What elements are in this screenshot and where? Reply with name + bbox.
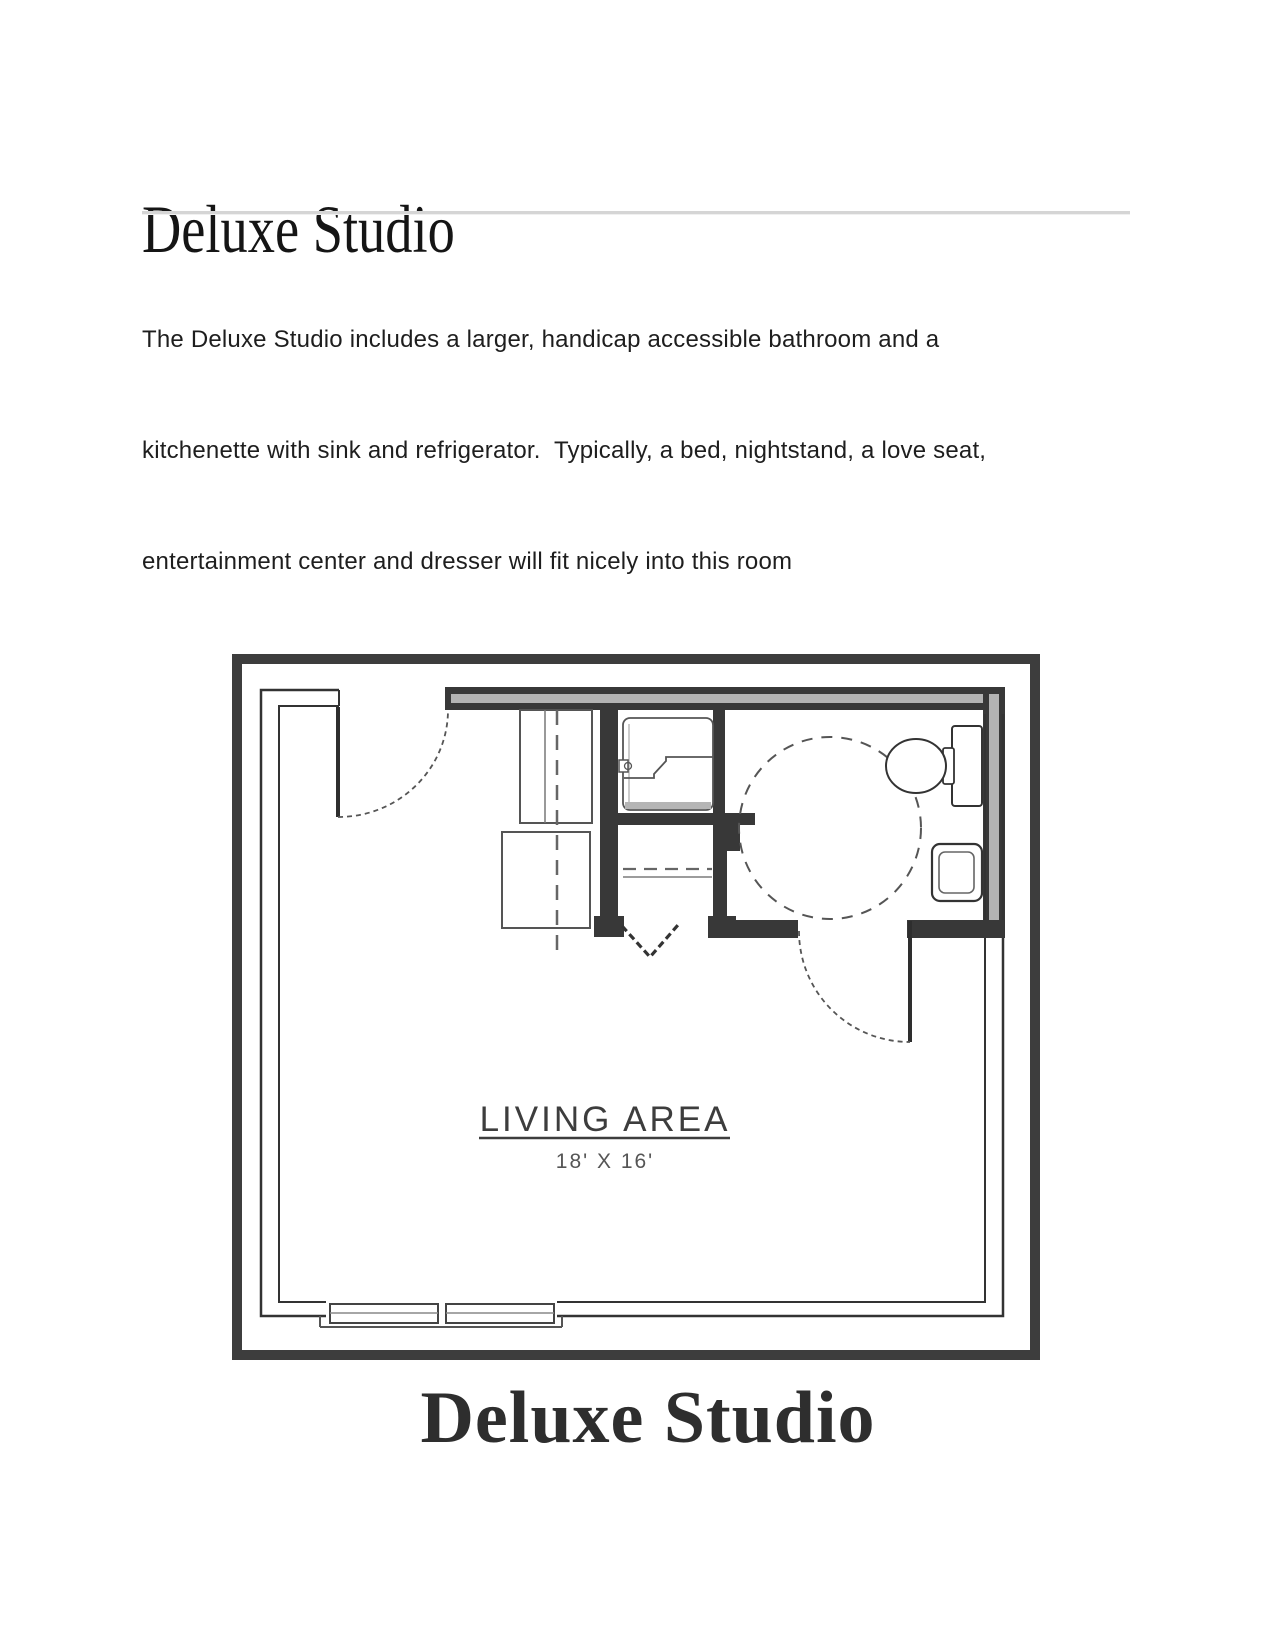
- title-divider-rule: [142, 211, 1130, 215]
- living-area-label: LIVING AREA: [480, 1100, 731, 1139]
- room-dimensions-label: 18' X 16': [556, 1150, 654, 1173]
- sink: [932, 844, 982, 901]
- window: [320, 1297, 562, 1327]
- description-paragraph: The Deluxe Studio includes a larger, han…: [142, 247, 1142, 617]
- plan-caption: Deluxe Studio: [244, 1381, 1052, 1455]
- shower-threshold: [625, 802, 711, 809]
- description-line: entertainment center and dresser will fi…: [142, 543, 1142, 580]
- description-line: The Deluxe Studio includes a larger, han…: [142, 321, 1142, 358]
- shower-valve: [619, 760, 628, 772]
- description-line: kitchenette with sink and refrigerator. …: [142, 432, 1142, 469]
- floor-plan-figure: LIVING AREA 18' X 16': [232, 654, 1040, 1360]
